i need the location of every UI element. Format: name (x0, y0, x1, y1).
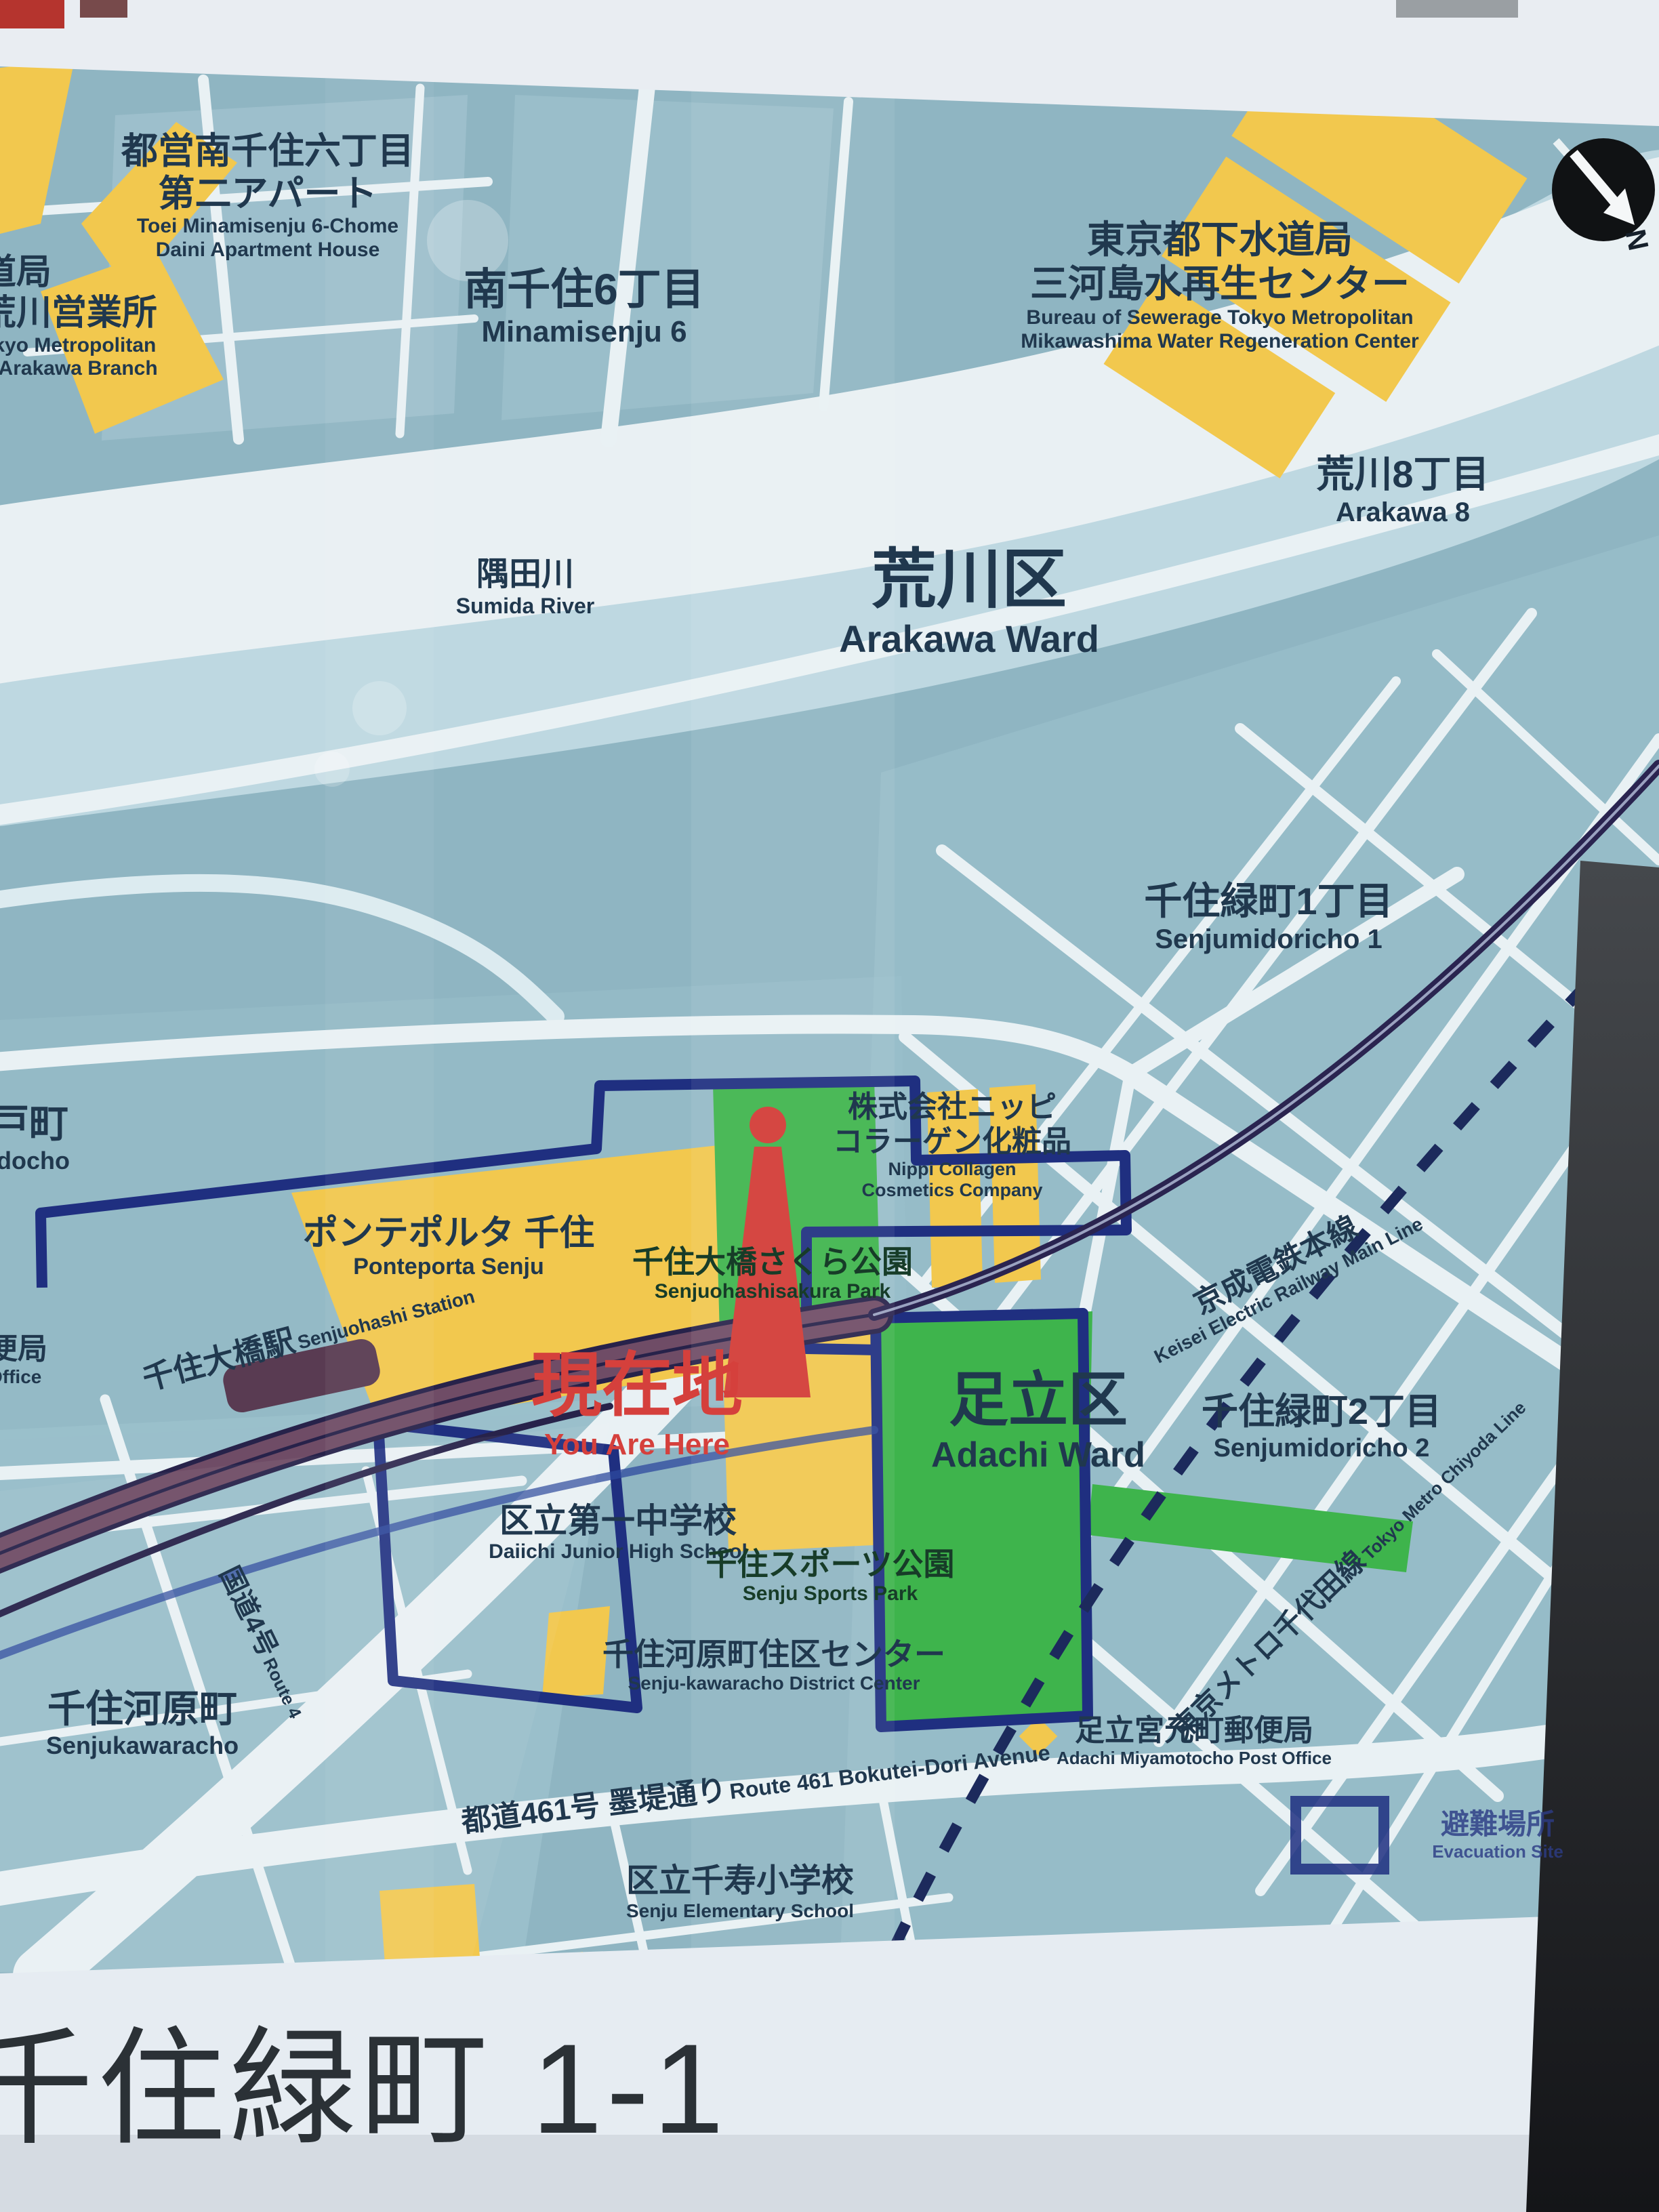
label-sports-park: 千住スポーツ公園 Senju Sports Park (705, 1547, 954, 1606)
map-sign-photo: 都営南千住六丁目 第二アパート Toei Minamisenju 6-Chome… (0, 0, 1659, 2212)
label-mikawashima-center: 東京都下水道局 三河島水再生センター Bureau of Sewerage To… (1021, 218, 1418, 354)
north-arrow-icon (1552, 138, 1655, 241)
label-elementary-school: 区立千寿小学校 Senju Elementary School (626, 1862, 854, 1922)
label-district-center: 千住河原町住区センター Senju-kawaracho District Cen… (602, 1637, 945, 1695)
sign-title-address: 千住緑町 1-1 (0, 1986, 728, 2170)
label-adachi-ward: 足立区 Adachi Ward (931, 1366, 1145, 1475)
label-arakawa-ward: 荒川区 Arakawa Ward (839, 542, 1099, 661)
label-sumida-river: 隅田川 Sumida River (456, 556, 595, 619)
label-you-are-here: 現在地 You Are Here (531, 1345, 743, 1462)
label-nippi-collagen: 株式会社ニッピ コラーゲン化粧品 Nippi Collagen Cosmetic… (833, 1090, 1071, 1202)
label-hashidocho: 戸町 idocho (0, 1101, 70, 1175)
label-ponteporta-senju: ポンテポルタ 千住 Ponteporta Senju (303, 1213, 594, 1281)
label-arakawa8: 荒川8丁目 Arakawa 8 (1316, 453, 1489, 528)
label-senjukawaracho: 千住河原町 Senjukawaracho (46, 1687, 239, 1760)
label-waterworks-branch: 道局 荒川営業所 okyo Metropolitan d Arakawa Bra… (0, 252, 158, 381)
label-toei-apartment: 都営南千住六丁目 第二アパート Toei Minamisenju 6-Chome… (121, 130, 414, 262)
label-senjumidoricho2: 千住緑町2丁目 Senjumidoricho 2 (1202, 1391, 1441, 1463)
label-minamisenju6: 南千住6丁目 Minamisenju 6 (464, 264, 705, 349)
label-miyamotocho-post-office: 足立宮元町郵便局 Adachi Miyamotocho Post Office (1057, 1713, 1332, 1768)
label-senjumidoricho1: 千住緑町1丁目 Senjumidoricho 1 (1144, 880, 1393, 955)
label-evacuation-site-legend: 避難場所 Evacuation Site (1432, 1808, 1563, 1862)
label-post-office-cut: 便局 Office (0, 1332, 47, 1389)
label-sakura-park: 千住大橋さくら公園 Senjuohashisakura Park (632, 1244, 913, 1304)
